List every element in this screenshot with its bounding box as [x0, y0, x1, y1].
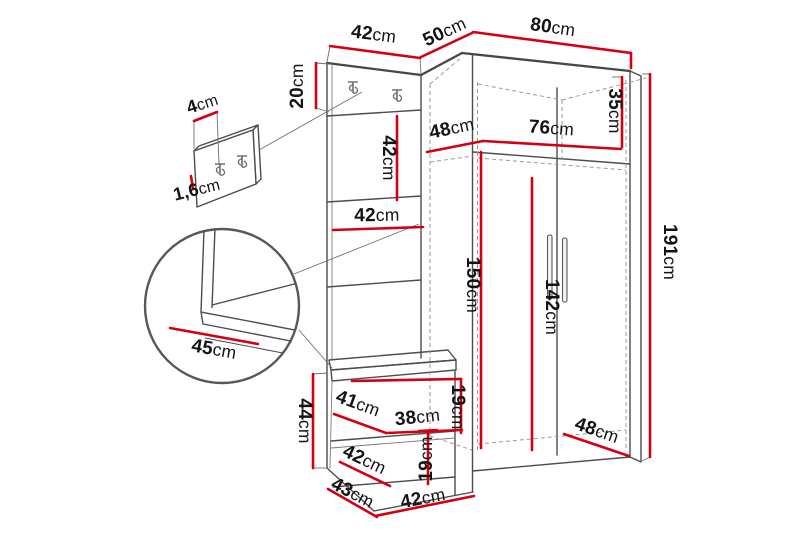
- furniture-outline: [327, 53, 641, 511]
- dim-wardrobe-side-depth-top: 48cm: [428, 114, 477, 144]
- coat-hook-icon: [348, 82, 402, 101]
- dim-upper-niche-height: 19cm: [447, 384, 468, 429]
- dim-mirror-height: 42cm: [378, 135, 399, 180]
- dim-bench-side-depth: 43cm: [328, 473, 378, 512]
- dim-panel-width-top: 42cm: [350, 21, 398, 47]
- dim-bench-height: 44cm: [294, 398, 315, 443]
- dim-lower-niche-height: 19cm: [416, 436, 437, 481]
- diagram-canvas: 42cm 50cm 80cm 20cm 4cm 1,6cm 48cm 76cm …: [0, 0, 800, 533]
- dim-wardrobe-side-depth-bottom: 48cm: [572, 414, 622, 449]
- dim-wardrobe-width: 80cm: [529, 14, 577, 41]
- dim-bench-inner-width: 38cm: [394, 405, 441, 431]
- dim-wardrobe-inner-width: 76cm: [528, 116, 575, 140]
- dim-interior-height: 150cm: [462, 257, 483, 313]
- dim-shelf-width: 42cm: [354, 205, 400, 227]
- dim-top-shelf-height: 35cm: [604, 88, 625, 133]
- furniture-dimension-diagram: 42cm 50cm 80cm 20cm 4cm 1,6cm 48cm 76cm …: [0, 0, 800, 533]
- dim-door-height: 142cm: [541, 279, 562, 335]
- dim-hook-strip-height: 20cm: [287, 63, 308, 108]
- dim-total-height: 191cm: [659, 224, 680, 280]
- dim-bench-width: 42cm: [399, 484, 447, 513]
